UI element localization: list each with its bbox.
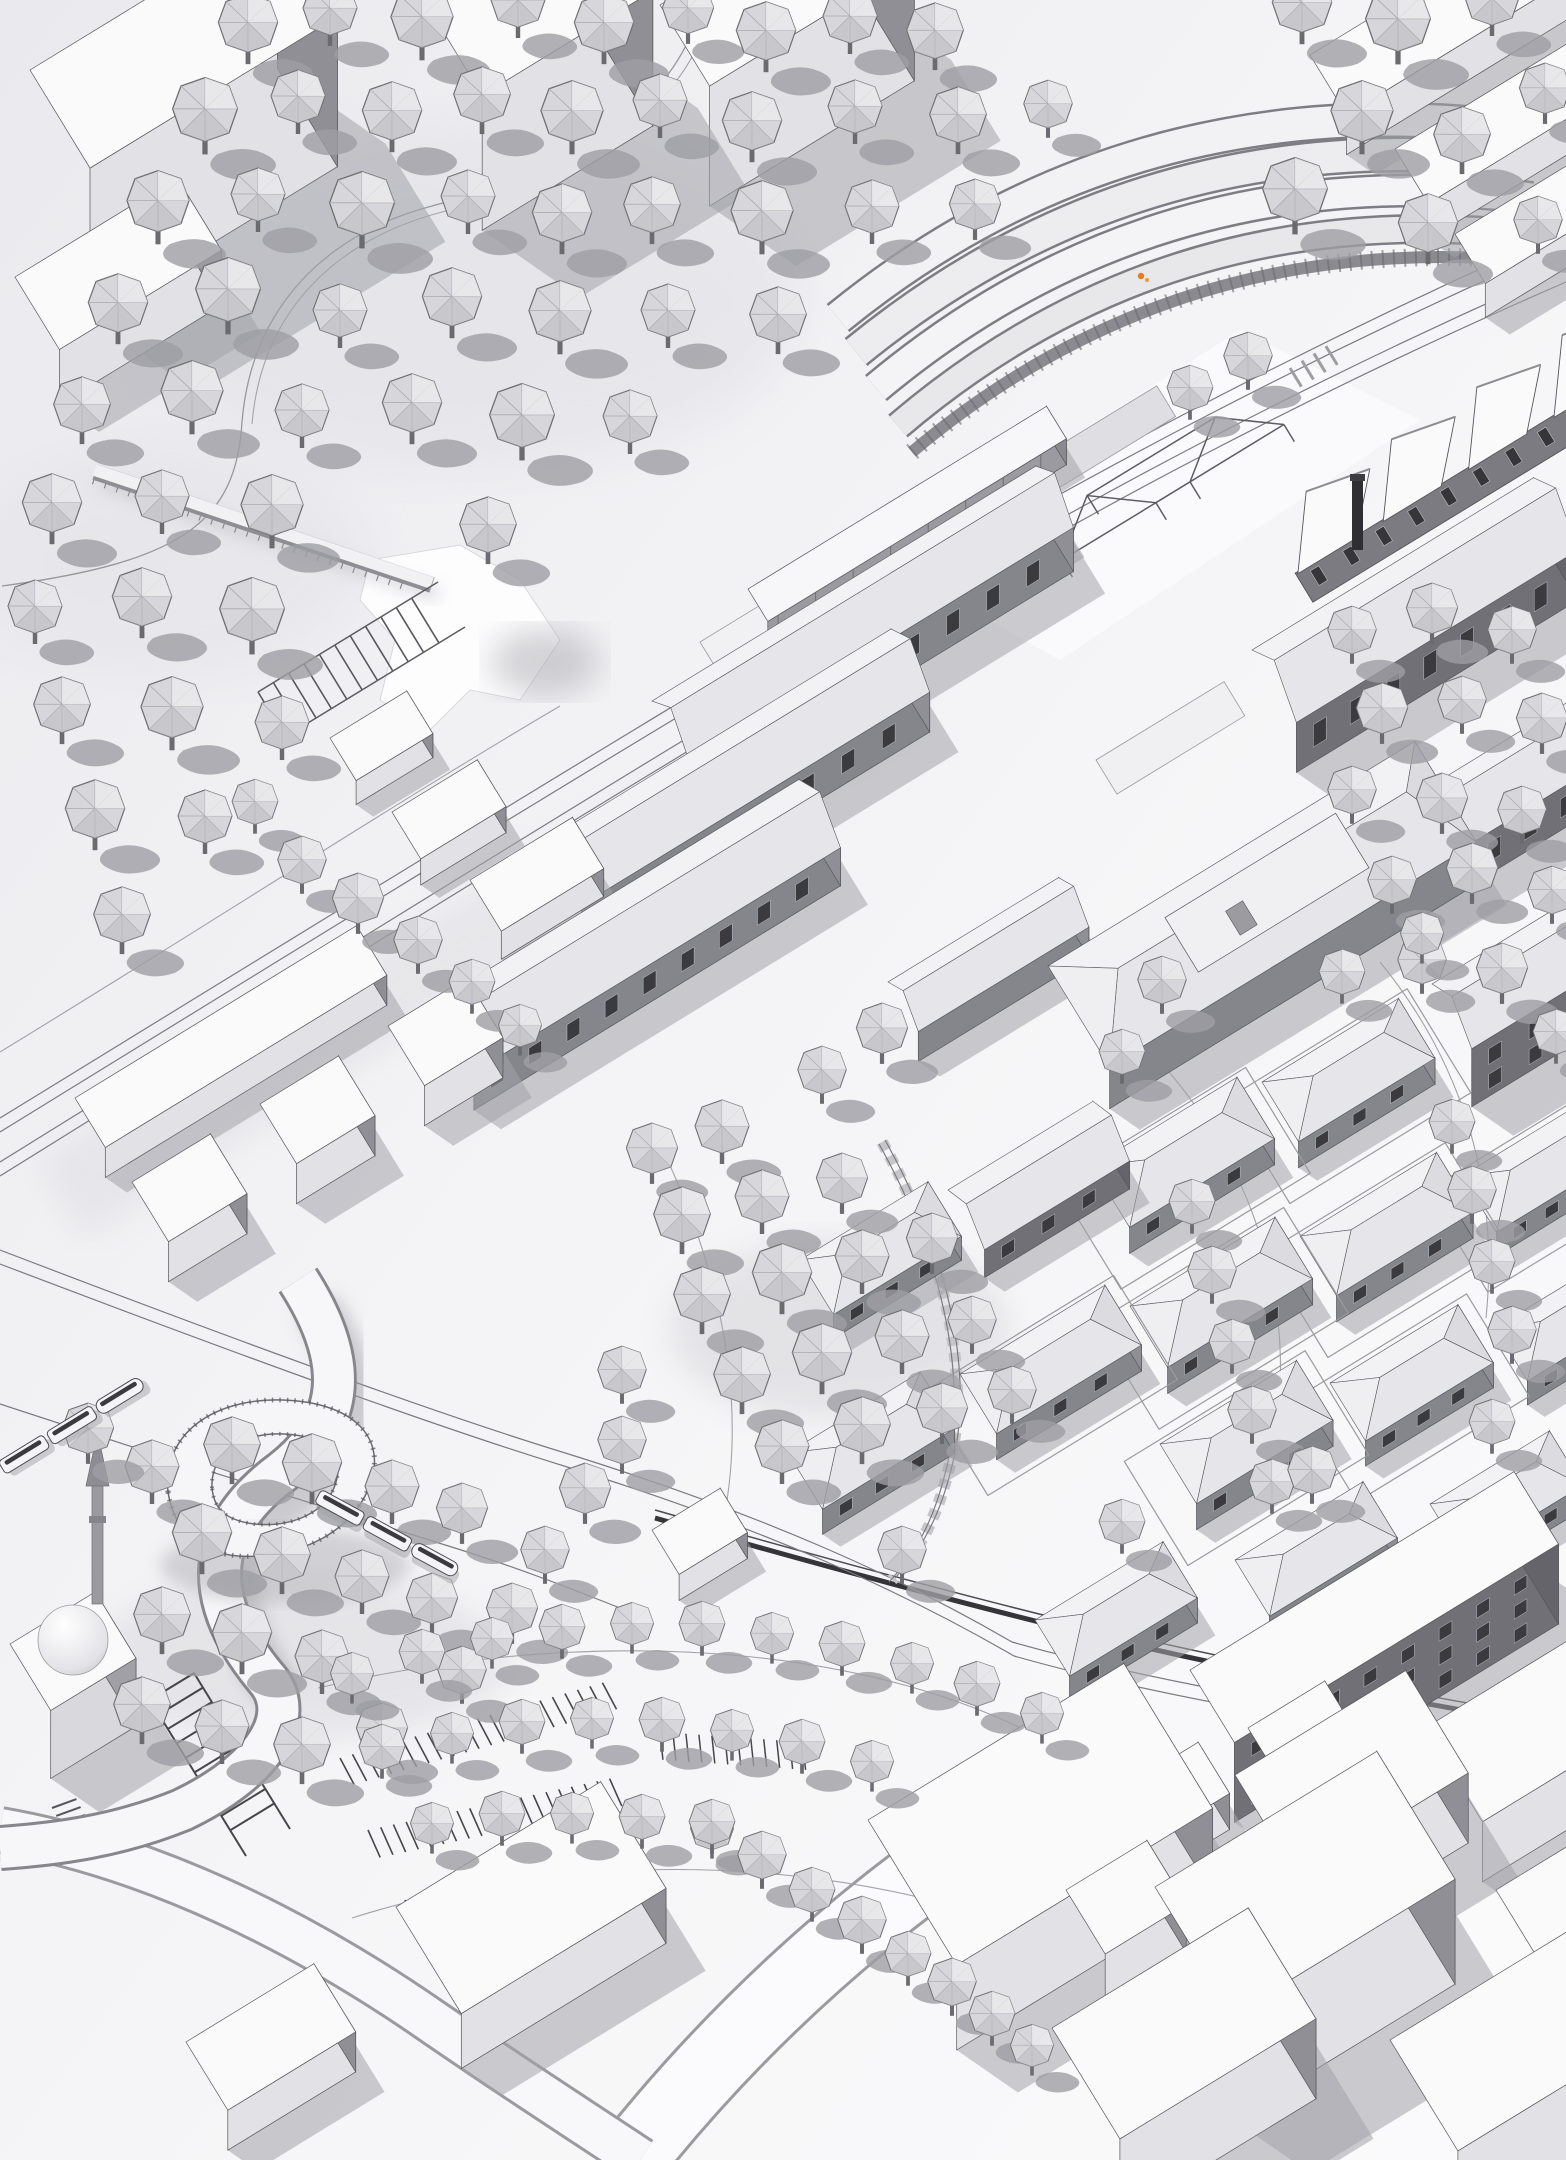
roof-north bbox=[1130, 1217, 1275, 1306]
parking-bound-south bbox=[352, 1869, 1000, 1920]
southwest-road bbox=[0, 1830, 640, 2160]
window bbox=[747, 731, 760, 759]
hatch-line bbox=[341, 556, 346, 569]
white-patch bbox=[360, 545, 560, 730]
tree bbox=[1272, 0, 1367, 68]
tree bbox=[410, 1802, 479, 1870]
tree bbox=[752, 1244, 847, 1338]
window bbox=[643, 970, 656, 995]
tree bbox=[332, 873, 414, 954]
window bbox=[796, 877, 809, 902]
wall-long bbox=[710, 0, 915, 206]
hatch-line bbox=[1256, 983, 1271, 1007]
wall-end bbox=[1147, 1840, 1186, 1952]
cast-shadow bbox=[1527, 1289, 1566, 1417]
tree bbox=[1169, 1179, 1242, 1251]
roof-hip-w bbox=[788, 1447, 836, 1509]
wall-end bbox=[467, 978, 504, 1078]
tram-sleepers bbox=[882, 1142, 957, 1580]
factory-roof-b bbox=[1395, 13, 1566, 257]
window bbox=[1227, 1166, 1240, 1186]
roof-south bbox=[903, 886, 1089, 1031]
roof-north bbox=[1035, 1542, 1163, 1620]
hatch-line bbox=[482, 1806, 494, 1833]
window bbox=[1321, 1583, 1334, 1602]
factory-roof-a bbox=[1310, 0, 1566, 175]
window bbox=[1544, 1507, 1557, 1526]
hatch-line bbox=[400, 576, 405, 589]
roof-flat bbox=[1066, 1840, 1186, 1954]
roof-south bbox=[1299, 1032, 1436, 1141]
window bbox=[605, 994, 618, 1019]
hatch-line bbox=[1233, 996, 1248, 1020]
wall-end bbox=[1325, 1681, 1359, 1777]
tree bbox=[498, 1004, 567, 1072]
roof-hip-e bbox=[1222, 1077, 1275, 1138]
hatch-line bbox=[258, 692, 285, 736]
tree bbox=[490, 384, 593, 486]
window bbox=[1251, 1469, 1264, 1489]
roof-north bbox=[1252, 478, 1556, 661]
minaret bbox=[86, 1432, 109, 1604]
hatch-line bbox=[431, 1896, 441, 1924]
window bbox=[1488, 836, 1501, 863]
wall-long bbox=[1463, 1486, 1566, 1583]
cast-shadow bbox=[90, 69, 445, 394]
tree bbox=[598, 1346, 676, 1423]
hatch-line bbox=[92, 471, 97, 484]
hatch-line bbox=[444, 1814, 456, 1841]
court-pit bbox=[1226, 901, 1258, 935]
tree bbox=[127, 171, 226, 269]
roof-south bbox=[671, 473, 1074, 763]
tree bbox=[282, 1434, 377, 1528]
hatch-line bbox=[1321, 890, 1336, 914]
tree bbox=[94, 887, 184, 976]
driveway-loop bbox=[1226, 989, 1471, 1204]
train-car bbox=[94, 1376, 146, 1416]
avenue-edge bbox=[630, 1748, 1134, 2160]
tree bbox=[949, 179, 1031, 260]
roof-north bbox=[948, 1101, 1111, 1204]
window bbox=[876, 1475, 889, 1494]
cast-shadow bbox=[1337, 1179, 1492, 1335]
loop-railing-outer bbox=[168, 1400, 375, 1556]
wall-long bbox=[1120, 2019, 1316, 2160]
tree bbox=[438, 1646, 516, 1723]
window bbox=[1452, 1387, 1465, 1406]
roof-hip-w bbox=[1262, 1076, 1313, 1142]
wall-long bbox=[1527, 1318, 1566, 1405]
tree bbox=[359, 1724, 432, 1796]
roof-north bbox=[1235, 1482, 1363, 1560]
tree bbox=[1024, 80, 1102, 157]
tree bbox=[890, 1642, 959, 1710]
tree bbox=[1488, 606, 1566, 683]
hatch-line bbox=[212, 1774, 256, 1801]
hatch-line bbox=[1278, 969, 1293, 993]
hatch-line bbox=[128, 483, 133, 496]
hatch-line bbox=[1302, 361, 1313, 380]
wall-end bbox=[1399, 999, 1436, 1085]
hatch-line bbox=[390, 1744, 404, 1770]
hatch-line bbox=[610, 1779, 622, 1806]
house-dark-1 bbox=[948, 1101, 1150, 1291]
tree bbox=[1514, 196, 1566, 273]
house-r2a bbox=[1426, 1091, 1566, 1292]
wall-end bbox=[720, 1488, 747, 1558]
wall-end bbox=[211, 1134, 248, 1234]
hatch-line bbox=[673, 1733, 676, 1761]
roof-flat bbox=[1130, 1742, 1230, 1835]
orange-accent bbox=[1138, 273, 1144, 279]
window bbox=[599, 897, 612, 923]
cast-shadow bbox=[679, 1514, 766, 1613]
hatch-line bbox=[1178, 1030, 1193, 1054]
window bbox=[1353, 1107, 1366, 1127]
wall-long bbox=[833, 1236, 961, 1338]
roof-flat bbox=[1052, 1908, 1316, 2139]
paving-patch bbox=[520, 889, 649, 994]
tree bbox=[845, 180, 931, 265]
wall-long bbox=[482, 0, 653, 230]
hatch-line bbox=[469, 1891, 479, 1919]
wall-end bbox=[1036, 466, 1074, 571]
tree bbox=[382, 374, 477, 468]
roof-south bbox=[1168, 1253, 1313, 1368]
window bbox=[787, 706, 800, 734]
house-r5a bbox=[1430, 1431, 1566, 1595]
wall-end bbox=[891, 629, 930, 732]
hatch-line bbox=[515, 1708, 529, 1734]
block-i bbox=[1052, 1908, 1374, 2160]
hatch-line bbox=[56, 1807, 80, 1816]
hatch-line bbox=[353, 560, 358, 573]
tree bbox=[1519, 63, 1566, 144]
roof-hip-w bbox=[960, 1368, 1011, 1434]
wall-long bbox=[425, 1038, 504, 1126]
wall-end bbox=[1051, 495, 1069, 546]
wall-long bbox=[1283, 1737, 1360, 1824]
tree bbox=[499, 1699, 572, 1771]
hatch-line bbox=[223, 515, 228, 528]
street-east bbox=[1380, 962, 1489, 1318]
hatch-line bbox=[1287, 910, 1302, 934]
window bbox=[1354, 1284, 1367, 1304]
roof-flat bbox=[1235, 1671, 1468, 1878]
tree bbox=[1331, 81, 1430, 179]
tree bbox=[1188, 1246, 1266, 1323]
roof-hip-w bbox=[1330, 1378, 1380, 1442]
hatch-line bbox=[211, 511, 216, 524]
hatch-line bbox=[1332, 883, 1347, 907]
tree bbox=[654, 1187, 744, 1276]
station-plaza bbox=[880, 330, 1420, 660]
cast-shadow bbox=[1130, 1103, 1294, 1266]
cast-shadow bbox=[1347, 0, 1566, 175]
hatch-line bbox=[317, 548, 322, 561]
roof-north bbox=[1495, 1265, 1566, 1328]
cast-shadow bbox=[1105, 1888, 1221, 2026]
tree bbox=[828, 80, 914, 165]
window bbox=[1387, 672, 1400, 702]
embankment-top-line bbox=[655, 1510, 1566, 1720]
cast-shadow bbox=[1270, 1507, 1416, 1654]
cast-shadow bbox=[1120, 1988, 1374, 2160]
cast-shadow bbox=[1298, 1741, 1519, 1983]
hatch-line bbox=[273, 683, 300, 727]
tree bbox=[714, 1347, 804, 1436]
window bbox=[680, 847, 693, 873]
roof-hip-e bbox=[1406, 742, 1476, 843]
window bbox=[1251, 1759, 1264, 1780]
window bbox=[681, 947, 694, 972]
hatch-line bbox=[396, 608, 423, 652]
tree bbox=[598, 1416, 676, 1493]
cast-shadow bbox=[421, 786, 525, 898]
roof-flat bbox=[1390, 1930, 1566, 2150]
tree bbox=[394, 916, 472, 993]
wall-end bbox=[1059, 878, 1089, 958]
paving-patch bbox=[700, 506, 959, 703]
tree bbox=[610, 1602, 679, 1670]
hatch-line bbox=[65, 1823, 89, 1832]
hatch-line bbox=[195, 1745, 239, 1772]
hatch-line bbox=[187, 503, 192, 516]
hatch-line bbox=[381, 1827, 393, 1854]
tree bbox=[1010, 2024, 1079, 2092]
roof-north bbox=[432, 780, 820, 1017]
steel-truss-frame bbox=[1040, 389, 1294, 577]
wall-long bbox=[1472, 960, 1566, 1107]
tree bbox=[1446, 843, 1528, 924]
hatch-line bbox=[440, 1729, 454, 1755]
house-r3c bbox=[924, 1276, 1177, 1496]
train-shadow bbox=[5, 1437, 57, 1477]
hatch-line bbox=[444, 1895, 454, 1923]
tree bbox=[662, 0, 744, 64]
cast-shadow bbox=[918, 908, 1110, 1077]
hatch-line bbox=[366, 626, 393, 670]
tree bbox=[1488, 1306, 1566, 1383]
house-r1a bbox=[1226, 989, 1471, 1204]
roof-flat bbox=[1155, 1751, 1455, 2015]
block-h bbox=[1155, 1751, 1531, 2160]
tree bbox=[330, 1652, 399, 1720]
buildings-layer bbox=[10, 0, 1566, 2160]
wall-long bbox=[51, 1658, 136, 1778]
wall-long bbox=[768, 439, 1067, 648]
hatch-line bbox=[350, 636, 377, 680]
roof-south bbox=[1452, 908, 1566, 1049]
roof-flat bbox=[430, 0, 653, 95]
tree bbox=[271, 70, 357, 155]
window bbox=[1461, 627, 1474, 657]
wall-long bbox=[356, 734, 433, 805]
hatch-line bbox=[393, 1825, 405, 1852]
hatch-line bbox=[140, 487, 145, 500]
hatch-line bbox=[577, 1690, 591, 1716]
roof-north bbox=[1330, 1305, 1458, 1383]
roads-layer bbox=[0, 2, 1566, 2160]
tree bbox=[1416, 773, 1498, 854]
tree bbox=[173, 78, 276, 180]
wall-long bbox=[1497, 1159, 1566, 1256]
hatch-layer bbox=[52, 346, 1369, 1928]
cast-shadow bbox=[1234, 1552, 1566, 1863]
tree bbox=[1516, 693, 1566, 774]
tree bbox=[8, 580, 94, 665]
tree bbox=[275, 384, 361, 469]
cast-shadow bbox=[1472, 953, 1566, 1136]
roof-north bbox=[1092, 1077, 1237, 1166]
pavilion-3 bbox=[470, 817, 624, 973]
tree bbox=[335, 1550, 421, 1635]
cast-shadow bbox=[833, 1206, 978, 1351]
roof-flat bbox=[392, 760, 506, 859]
tree bbox=[1020, 1692, 1089, 1760]
hatch-line bbox=[1354, 869, 1369, 893]
tree bbox=[639, 1697, 712, 1769]
cast-shadow bbox=[1161, 1778, 1255, 1889]
wall-end bbox=[357, 926, 387, 1006]
tree bbox=[220, 578, 323, 680]
tree bbox=[112, 568, 207, 662]
window bbox=[1489, 1067, 1502, 1090]
hatch-line bbox=[490, 1715, 504, 1741]
block-f bbox=[1066, 1840, 1221, 2026]
tree bbox=[1429, 1099, 1502, 1171]
tower-podium bbox=[15, 178, 261, 432]
shed-columns bbox=[912, 257, 1540, 452]
hatch-line bbox=[270, 531, 275, 544]
wall-long bbox=[59, 250, 221, 404]
hatch-line bbox=[230, 1803, 274, 1830]
wall-end bbox=[1105, 1285, 1142, 1371]
train-windows bbox=[370, 1520, 407, 1543]
footbridge bbox=[95, 470, 438, 595]
hatch-line bbox=[508, 1800, 520, 1827]
window bbox=[1082, 1189, 1095, 1210]
hatch-line bbox=[73, 1839, 97, 1848]
tree bbox=[819, 1621, 892, 1693]
tree bbox=[313, 284, 399, 369]
tree bbox=[755, 1420, 841, 1505]
roof-flat bbox=[186, 1964, 356, 2111]
cube-1 bbox=[132, 1134, 276, 1302]
window bbox=[1534, 582, 1547, 612]
house-r1b bbox=[1056, 1068, 1310, 1290]
shed-platform-wall bbox=[912, 257, 1540, 452]
wall-long bbox=[1458, 2041, 1566, 2160]
tree bbox=[54, 377, 144, 466]
tree bbox=[303, 0, 389, 67]
tree bbox=[1099, 1029, 1172, 1101]
tree bbox=[954, 1661, 1027, 1733]
tree bbox=[1398, 936, 1476, 1013]
station-pergola bbox=[258, 582, 465, 737]
window bbox=[1289, 1446, 1302, 1466]
window bbox=[529, 1040, 542, 1065]
hatch-line bbox=[282, 535, 287, 548]
hatch-line bbox=[751, 1738, 754, 1766]
roof-north bbox=[888, 878, 1074, 991]
hatch-line bbox=[186, 1731, 230, 1758]
hatch-line bbox=[432, 1816, 444, 1843]
hatch-line bbox=[152, 491, 157, 504]
wall-long bbox=[1556, 1910, 1566, 2054]
wall-long bbox=[1130, 1139, 1275, 1254]
overpass-layer bbox=[0, 470, 465, 1856]
hatch-line bbox=[602, 1683, 616, 1709]
hatch-line bbox=[427, 1733, 441, 1759]
roof-hip-e bbox=[1384, 999, 1435, 1059]
train-shadow bbox=[315, 1497, 366, 1534]
tree bbox=[232, 779, 305, 851]
hatch-line bbox=[725, 1737, 728, 1765]
wall-end bbox=[799, 780, 841, 886]
window bbox=[1402, 1668, 1415, 1689]
tree bbox=[619, 1794, 692, 1866]
parking-row-1 bbox=[340, 1683, 617, 1785]
hatch-line bbox=[1314, 353, 1325, 372]
cast-shadow bbox=[823, 1397, 973, 1547]
roof-hip-w bbox=[1130, 1300, 1183, 1367]
tree bbox=[330, 172, 433, 274]
tree bbox=[204, 1417, 294, 1506]
window bbox=[842, 748, 855, 774]
roof-hip-e bbox=[1090, 1285, 1141, 1345]
tree bbox=[633, 74, 719, 159]
window bbox=[707, 755, 720, 783]
window bbox=[1560, 791, 1566, 818]
tree bbox=[710, 1709, 779, 1777]
cast-shadow bbox=[1283, 1721, 1389, 1844]
window bbox=[720, 823, 733, 849]
tree bbox=[1366, 0, 1469, 90]
roof-hip-e bbox=[1422, 1153, 1473, 1213]
tree bbox=[792, 1324, 887, 1418]
house-r3b bbox=[1495, 1265, 1566, 1417]
window bbox=[1356, 1562, 1369, 1581]
window bbox=[920, 1260, 933, 1279]
train-shadow bbox=[100, 1379, 152, 1419]
wall-end bbox=[1047, 406, 1067, 464]
tree bbox=[430, 1712, 499, 1780]
footbridge-steps bbox=[92, 471, 404, 589]
roof-flat bbox=[396, 1782, 666, 2014]
house-r3d bbox=[1294, 1294, 1529, 1502]
smudge bbox=[490, 628, 600, 696]
wall-end bbox=[1415, 742, 1477, 885]
roof-south bbox=[1527, 1295, 1566, 1381]
train-car bbox=[314, 1489, 365, 1526]
window bbox=[1042, 1214, 1055, 1235]
window bbox=[1094, 1373, 1107, 1393]
pergola-parking-rafters bbox=[150, 1673, 275, 1830]
cast-shadow bbox=[985, 1129, 1150, 1291]
roof-flat bbox=[1496, 1812, 1566, 1988]
wall-long bbox=[690, 528, 1074, 807]
tree bbox=[539, 1604, 612, 1676]
wall-long bbox=[1482, 1733, 1566, 1882]
hatch-line bbox=[221, 1789, 265, 1816]
mosque-hall bbox=[10, 1592, 185, 1813]
roof-flat bbox=[15, 178, 221, 350]
window bbox=[840, 1497, 853, 1516]
wall-long bbox=[169, 1194, 248, 1282]
window bbox=[1429, 1238, 1442, 1258]
